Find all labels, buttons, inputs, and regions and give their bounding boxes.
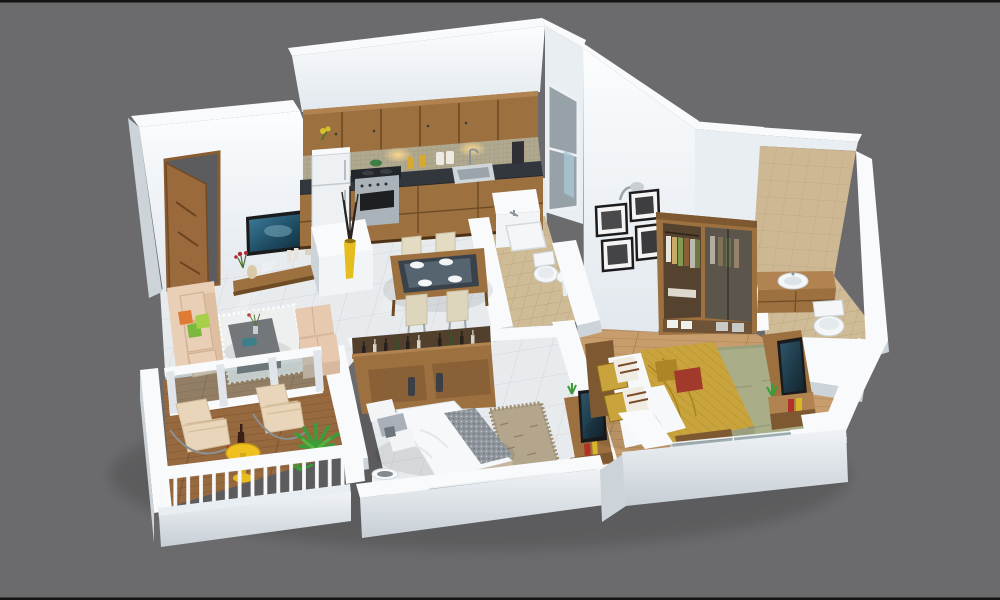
door-handle	[436, 373, 443, 392]
shower-tray	[506, 222, 546, 251]
candle-jar	[419, 155, 425, 167]
wardrobe-sliding-section	[705, 227, 752, 322]
towels	[667, 320, 678, 328]
plate	[448, 276, 462, 283]
stove-oven	[351, 166, 401, 227]
candle-jar	[408, 157, 414, 169]
wardrobe	[656, 212, 757, 335]
red-pillow	[674, 367, 703, 393]
plate	[410, 262, 424, 269]
candle-holder	[287, 250, 292, 262]
green-bowl	[370, 160, 382, 167]
jar	[436, 152, 444, 165]
balcony-east-rail	[342, 436, 365, 484]
door-handle	[408, 377, 415, 396]
candle-holder	[294, 248, 299, 260]
accent-pillow	[384, 426, 396, 438]
plate	[418, 280, 432, 287]
basket	[732, 323, 744, 332]
small-vase	[247, 265, 257, 279]
floorplan-render: 3D isometric render of a 2BHK apartment …	[0, 0, 1000, 600]
storage-headboard-unit	[352, 326, 496, 414]
kitchen-island	[311, 219, 373, 297]
floorplan-scene: 3D isometric render of a 2BHK apartment …	[0, 0, 1000, 600]
kitchen-window-wall	[542, 18, 586, 224]
plate	[439, 259, 453, 266]
basket	[716, 322, 728, 331]
jar	[446, 151, 454, 164]
towels	[681, 321, 692, 329]
wardrobe-open-section	[663, 223, 701, 319]
coffee-maker	[512, 141, 524, 164]
top-border	[0, 0, 1000, 3]
orange-pillow	[178, 310, 193, 325]
